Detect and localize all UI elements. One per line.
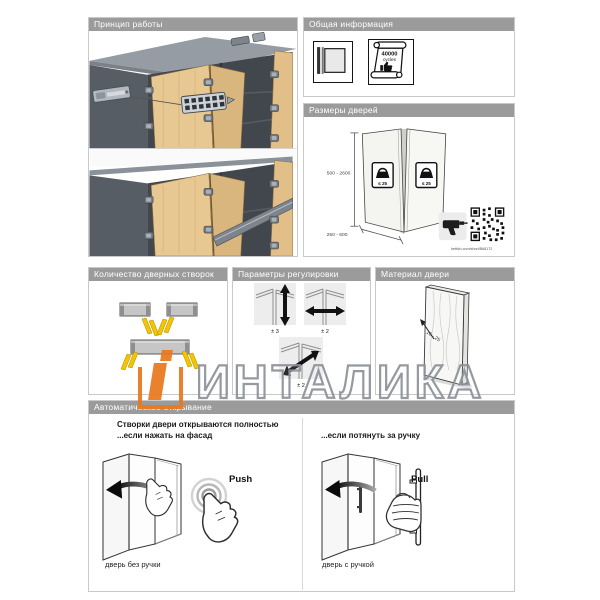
qr-code bbox=[469, 206, 506, 243]
panel-general-info: Общая информация 40000 cycles bbox=[303, 17, 515, 97]
drill-icon bbox=[439, 212, 468, 240]
adjust-horizontal-diagram bbox=[304, 283, 346, 325]
divider bbox=[302, 418, 303, 590]
panel-adjustment: Параметры регулировки ± 3 ± 2 bbox=[232, 267, 371, 395]
cycles-unit: cycles bbox=[383, 57, 397, 62]
adjust-vertical-value: ± 3 bbox=[271, 329, 279, 335]
qr-link: hettich.com/short/B68172 bbox=[451, 247, 492, 251]
panel-title-principle: Принцип работы bbox=[89, 18, 297, 31]
door-leaves-illustration bbox=[89, 281, 227, 394]
door-sizes-illustration: 500 - 2600 ≤ 25 ≤ 25 250 - 600 bbox=[304, 117, 514, 256]
catalog-icon bbox=[313, 41, 353, 83]
one-leaf-panel bbox=[131, 340, 189, 354]
adjustment-illustration: ± 3 ± 2 ± 2 bbox=[233, 281, 370, 394]
width-range-label: 250 - 600 bbox=[327, 232, 348, 238]
push-illustration bbox=[99, 450, 254, 562]
adjust-depth-diagram bbox=[279, 337, 323, 379]
cycles-certificate-icon: 40000 cycles bbox=[368, 39, 414, 85]
panel-door-material: Материал двери 16 - 25 bbox=[375, 267, 515, 395]
panel-title-adjustment: Параметры регулировки bbox=[233, 268, 370, 281]
panel-title-auto-opening: Автоматическое открывание bbox=[89, 401, 514, 414]
panel-door-leaves: Количество дверных створок bbox=[88, 267, 228, 395]
adjust-depth-value: ± 2 bbox=[297, 383, 305, 389]
caption-door-without-handle: дверь без ручки bbox=[105, 560, 161, 569]
caption-door-with-handle: дверь с ручкой bbox=[322, 560, 374, 569]
adjust-horizontal-value: ± 2 bbox=[321, 329, 329, 335]
panel-title-door-material: Материал двери bbox=[376, 268, 514, 281]
weight-limit-left: ≤ 25 bbox=[378, 181, 387, 186]
pull-label: Pull bbox=[411, 474, 428, 485]
panel-title-door-sizes: Размеры дверей bbox=[304, 104, 514, 117]
panel-title-door-leaves: Количество дверных створок bbox=[89, 268, 227, 281]
height-range-label: 500 - 2600 bbox=[327, 171, 351, 177]
panel-principle: Принцип работы bbox=[88, 17, 298, 257]
yellow-arrows-top bbox=[142, 317, 174, 336]
auto-opening-sub-right: ...если потянуть за ручку bbox=[321, 431, 420, 440]
adjust-vertical-diagram bbox=[254, 283, 296, 326]
auto-opening-sub-left: ...если нажать на фасад bbox=[117, 431, 212, 440]
auto-opening-headline: Створки двери открываются полностью bbox=[117, 420, 279, 429]
two-leaf-panels bbox=[120, 303, 197, 316]
cabinet-illustration bbox=[89, 31, 297, 256]
pull-illustration bbox=[315, 448, 475, 562]
panel-auto-opening: Автоматическое открывание Створки двери … bbox=[88, 400, 515, 592]
door-material-illustration: 16 - 25 bbox=[376, 281, 514, 394]
panel-title-general-info: Общая информация bbox=[304, 18, 514, 31]
weight-limit-right: ≤ 25 bbox=[422, 181, 431, 186]
panel-door-sizes: Размеры дверей 500 - 2600 ≤ 25 ≤ 25 250 … bbox=[303, 103, 515, 257]
push-label: Push bbox=[229, 474, 252, 485]
